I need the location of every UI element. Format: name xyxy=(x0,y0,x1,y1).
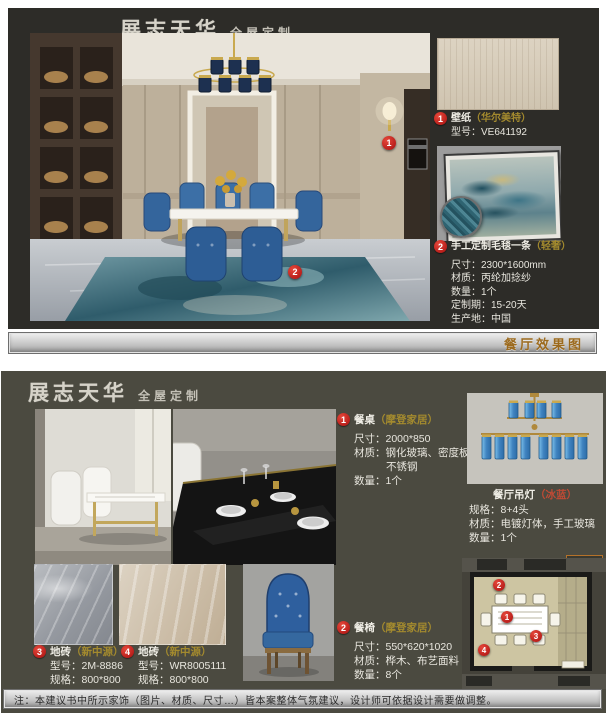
item-number-badge: 2 xyxy=(337,621,350,634)
item-line: 材质：桦木、布艺面料 xyxy=(354,654,459,668)
plan-marker-2: 2 xyxy=(493,579,505,591)
chair-annotation: 2 餐椅（摩登家居） 尺寸：550*620*1020 材质：桦木、布艺面料 数量… xyxy=(337,621,459,682)
floor-plan: 2 1 3 4 xyxy=(462,558,606,689)
carpet-annotation: 2 手工定制毛毯一条（轻奢） 尺寸：2300*1600mm 材质：丙纶加捻纱 数… xyxy=(434,240,571,326)
item-title: 壁纸 xyxy=(451,113,471,124)
item-title: 手工定制毛毯一条 xyxy=(451,241,531,252)
dining-room-photo: 1 2 xyxy=(30,33,430,321)
disclaimer-bar: 注：本建议书中所示家饰（图片、材质、尺寸…）皆本案整体气氛建议，设计师可依据设计… xyxy=(3,689,602,709)
item-line: 尺寸：550*620*1020 xyxy=(354,640,459,654)
item-title: 餐椅 xyxy=(354,622,375,634)
plan-marker-4: 4 xyxy=(478,644,490,656)
brand-logo-text: 展志天华 xyxy=(28,377,128,407)
effect-label-bar: 餐厅效果图 xyxy=(8,332,597,354)
item-line: 型号：VE641192 xyxy=(451,126,531,140)
item-brand: （轻奢） xyxy=(531,241,571,252)
page: 展志天华 全屋定制 xyxy=(0,0,607,719)
item-line: 规格：8+4头 xyxy=(469,503,595,517)
item-brand: （新中源） xyxy=(159,646,212,658)
item-brand: （新中源） xyxy=(71,646,124,658)
item-title: 餐桌 xyxy=(354,414,375,426)
item-line: 尺寸：2000*850 xyxy=(354,432,480,446)
item-line: 材质：电镀灯体，手工玻璃 xyxy=(469,517,595,531)
table-closeup-photo xyxy=(173,409,336,565)
item-number-badge: 1 xyxy=(337,413,350,426)
top-panel: 展志天华 全屋定制 xyxy=(8,8,599,329)
item-number-badge: 4 xyxy=(121,645,134,658)
effect-label: 餐厅效果图 xyxy=(504,334,584,353)
item-number-badge: 3 xyxy=(33,645,46,658)
tile-gray-annotation: 3 地砖（新中源） 型号：2M-8886 规格：800*800 xyxy=(33,645,124,687)
chandelier-specs: 规格：8+4头 材质：电镀灯体，手工玻璃 数量：1个 xyxy=(469,503,595,545)
item-line: 型号：2M-8886 xyxy=(50,659,124,673)
item-line: 材质：丙纶加捻纱 xyxy=(451,272,571,286)
carpet-sample-image xyxy=(437,146,561,241)
item-line: 尺寸：2300*1600mm xyxy=(451,259,571,273)
item-brand: （华尔美特） xyxy=(471,113,531,124)
item-brand: （摩登家居） xyxy=(375,414,438,426)
item-number-badge: 2 xyxy=(434,240,447,253)
tile-sample-gray xyxy=(34,564,113,645)
item-line: 数量：1个 xyxy=(469,531,595,545)
item-title: 地砖 xyxy=(138,646,159,658)
item-line: 材质：钢化玻璃、密度板、 xyxy=(354,446,480,460)
disclaimer-note: 注：本建议书中所示家饰（图片、材质、尺寸…）皆本案整体气氛建议，设计师可依据设计… xyxy=(14,692,497,707)
carpet-detail-inset xyxy=(440,196,482,238)
tile-sample-beige xyxy=(119,564,226,645)
table-annotation: 1 餐桌（摩登家居） 尺寸：2000*850 材质：钢化玻璃、密度板、 不锈钢 … xyxy=(337,413,480,488)
item-brand: （冰蓝） xyxy=(535,489,577,501)
dining-set-photo xyxy=(35,409,171,565)
brand-logo: 展志天华 全屋定制 xyxy=(28,377,202,407)
item-line: 定制期：15-20天 xyxy=(451,299,571,313)
item-title: 地砖 xyxy=(50,646,71,658)
item-number-badge: 1 xyxy=(434,112,447,125)
item-line: 规格：800*800 xyxy=(138,673,226,687)
chandelier-photo xyxy=(467,393,603,484)
bottom-panel: 展志天华 全屋定制 xyxy=(1,371,606,713)
item-line: 生产地：中国 xyxy=(451,313,571,327)
item-line: 数量：1个 xyxy=(451,286,571,300)
brand-tagline: 全屋定制 xyxy=(138,387,202,404)
item-line: 型号：WR8005111 xyxy=(138,659,226,673)
dining-room-illustration xyxy=(30,33,430,321)
chair-photo xyxy=(243,564,334,681)
item-line: 规格：800*800 xyxy=(50,673,124,687)
tile-beige-annotation: 4 地砖（新中源） 型号：WR8005111 规格：800*800 xyxy=(121,645,226,687)
item-line: 不锈钢 xyxy=(354,460,480,474)
photo-marker-1: 1 xyxy=(382,136,396,150)
plan-marker-1: 1 xyxy=(501,611,513,623)
wallpaper-annotation: 1 壁纸（华尔美特） 型号：VE641192 xyxy=(434,112,531,139)
chandelier-title: 餐厅吊灯（冰蓝） xyxy=(463,487,606,502)
item-line: 数量：1个 xyxy=(354,474,480,488)
plan-marker-3: 3 xyxy=(530,630,542,642)
photo-marker-2: 2 xyxy=(288,265,302,279)
item-title: 餐厅吊灯 xyxy=(493,489,535,501)
item-brand: （摩登家居） xyxy=(375,622,438,634)
wallpaper-sample-image xyxy=(437,38,559,110)
item-line: 数量：8个 xyxy=(354,668,459,682)
